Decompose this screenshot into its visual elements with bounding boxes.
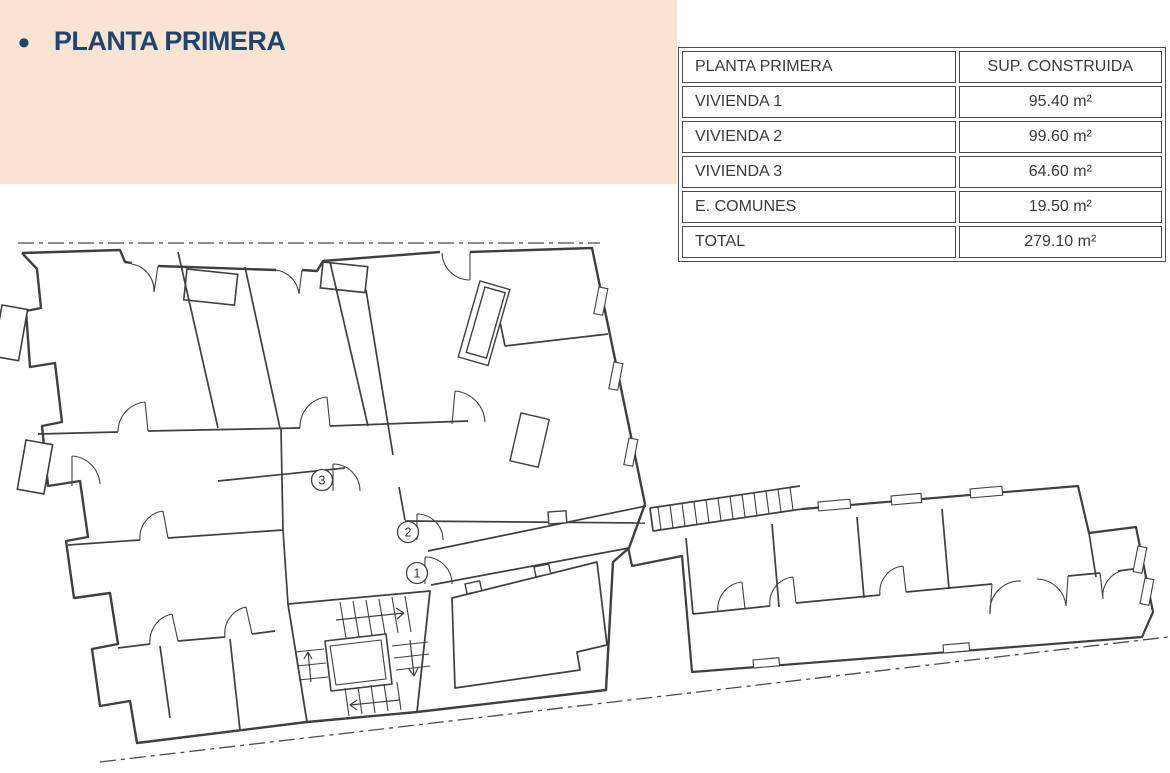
shaft-and-pillar-marks (458, 281, 567, 594)
facade-bay-rectangles (0, 262, 368, 494)
door-swing-arcs-main (72, 252, 485, 644)
stair-treads (295, 596, 430, 716)
page: • PLANTA PRIMERA PLANTA PRIMERA SUP. CON… (0, 0, 1170, 773)
stair-core (288, 591, 430, 722)
door-number-badges: 3 2 1 (312, 470, 428, 584)
window-marks-main (594, 287, 638, 466)
right-wing (628, 486, 1154, 672)
main-block-interior-walls (38, 252, 646, 730)
wing-stair-treads (658, 487, 793, 530)
site-boundary-lines (18, 243, 1168, 762)
floor-plan-drawing: 3 2 1 (0, 0, 1170, 773)
door-number-3: 3 (319, 474, 326, 488)
door-number-1: 1 (414, 567, 421, 581)
door-number-2: 2 (405, 526, 412, 540)
stair-direction-arrows (304, 608, 418, 710)
wing-exterior-walls (628, 486, 1153, 672)
